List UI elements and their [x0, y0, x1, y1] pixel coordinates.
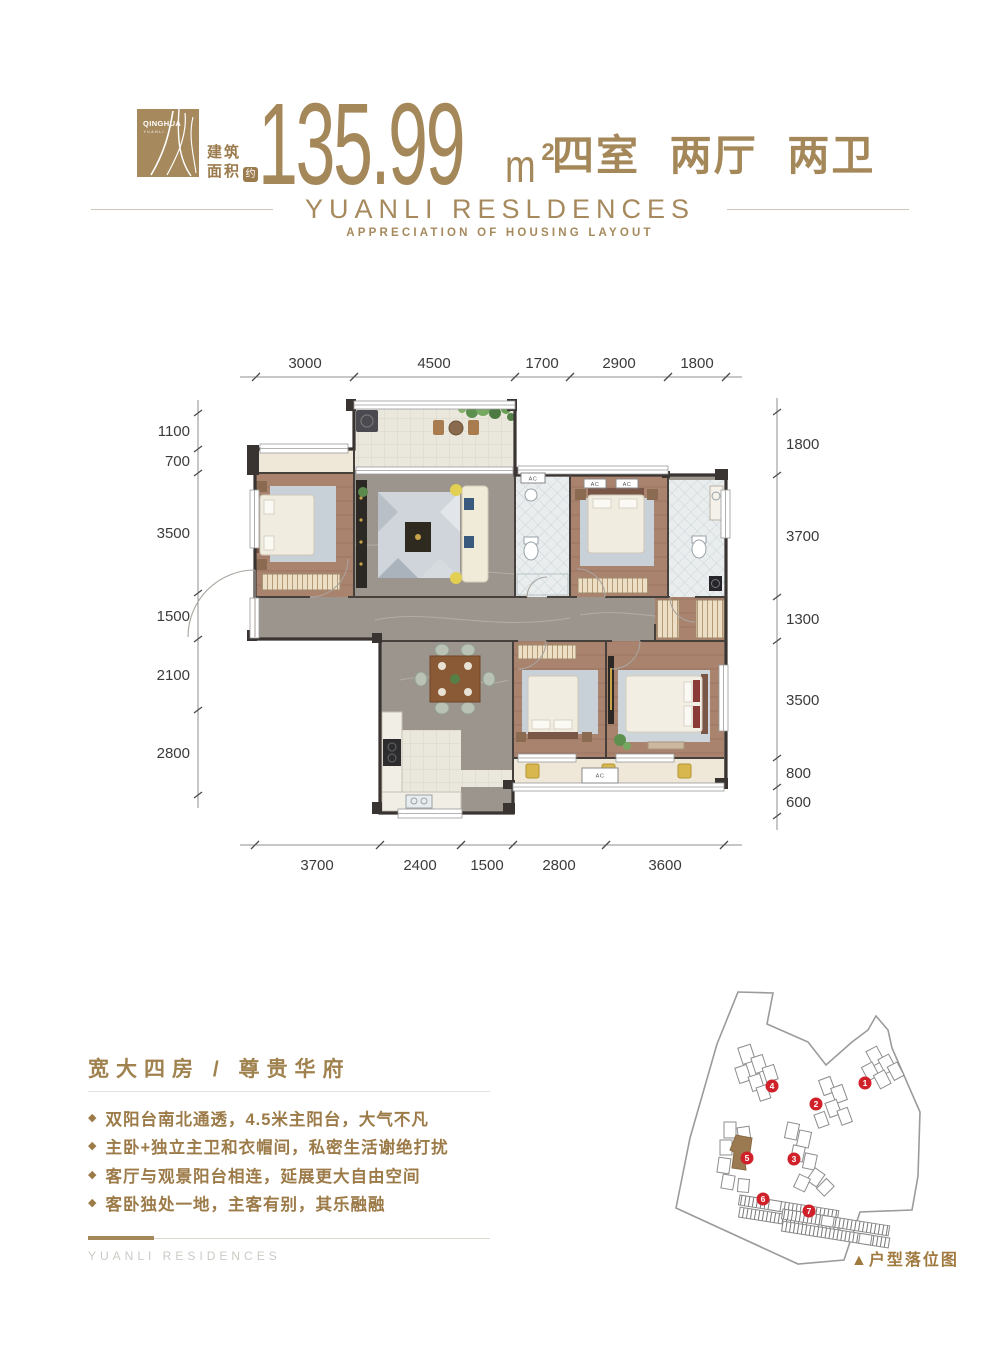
dim-label: 2900 — [602, 355, 635, 372]
feature-item: ◆ 客卧独处一地，主客有别，其乐融融 — [88, 1191, 385, 1215]
dim-label: 1500 — [470, 857, 503, 874]
page-title: YUANLI RESLDENCES — [305, 194, 695, 225]
dim-label: 1700 — [525, 355, 558, 372]
footer-divider-line — [154, 1238, 490, 1239]
diamond-icon: ◆ — [88, 1113, 96, 1124]
ac-label: AC — [623, 482, 632, 488]
dim-label: 2400 — [403, 857, 436, 874]
badge-number: 6 — [761, 1194, 766, 1204]
title-divider-right — [727, 209, 909, 210]
footer-divider-accent — [88, 1236, 154, 1240]
dim-labels-top: 3000 4500 1700 2900 1800 — [288, 355, 713, 372]
logo-line2: YUANLI — [144, 130, 165, 134]
logo-line1: QINGHUA — [143, 119, 181, 128]
dim-label: 2800 — [157, 745, 190, 762]
area-approx-badge: 约 — [243, 167, 258, 182]
dim-label: 800 — [786, 765, 811, 782]
ac-label: AC — [529, 477, 538, 483]
area-unit: m 2 — [505, 143, 555, 189]
footer-divider — [88, 1236, 490, 1240]
site-plan-svg: 1 2 3 4 5 6 7 — [640, 980, 1000, 1280]
feature-item: ◆ 双阳台南北通透，4.5米主阳台，大气不凡 — [88, 1106, 429, 1130]
dim-label: 1800 — [786, 436, 819, 453]
diamond-icon: ◆ — [88, 1141, 96, 1152]
dim-label: 2800 — [542, 857, 575, 874]
dim-label: 1100 — [158, 423, 190, 440]
site-plan: 1 2 3 4 5 6 7 — [640, 980, 1000, 1280]
feature-text: 双阳台南北通透，4.5米主阳台，大气不凡 — [105, 1106, 428, 1130]
dim-labels-bottom: 3700 2400 1500 2800 3600 — [300, 857, 681, 874]
features-divider — [88, 1091, 490, 1092]
features-heading: 宽大四房 / 尊贵华府 — [88, 1053, 351, 1083]
feature-item: ◆ 主卧+独立主卫和衣帽间，私密生活谢绝打扰 — [88, 1134, 449, 1158]
footer-brand: YUANLI RESIDENCES — [88, 1249, 281, 1263]
ac-label: AC — [591, 482, 600, 488]
area-unit-base: m — [505, 143, 536, 189]
badge-number: 5 — [745, 1153, 750, 1163]
title-row: YUANLI RESLDENCES — [0, 194, 1000, 225]
room-configuration: 四室 两厅 两卫 — [552, 122, 875, 183]
badge-number: 1 — [863, 1078, 868, 1088]
dim-label: 3500 — [786, 692, 819, 709]
dim-label: 3000 — [288, 355, 321, 372]
feature-item: ◆ 客厅与观景阳台相连，延展更大自由空间 — [88, 1163, 420, 1187]
dim-labels-left: 1100 700 3500 1500 2100 2800 — [157, 423, 190, 762]
badge-number: 3 — [792, 1154, 797, 1164]
dim-label: 3500 — [157, 525, 190, 542]
brand-logo: QINGHUA YUANLI — [137, 109, 199, 177]
area-value: 135.99 — [258, 86, 463, 202]
title-divider-left — [91, 209, 273, 210]
badge-number: 2 — [814, 1099, 819, 1109]
dim-label: 3700 — [300, 857, 333, 874]
dim-label: 4500 — [417, 355, 450, 372]
dim-label: 1300 — [786, 611, 819, 628]
site-plan-caption: ▲户型落位图 — [851, 1246, 959, 1270]
dim-label: 3700 — [786, 528, 819, 545]
diamond-icon: ◆ — [88, 1198, 96, 1209]
area-label: 建筑 面积 — [207, 143, 241, 181]
flyer-page: QINGHUA YUANLI 建筑 面积 约 135.99 m 2 四室 两厅 … — [0, 0, 1000, 1353]
dim-label: 1800 — [680, 355, 713, 372]
page-subtitle: APPRECIATION OF HOUSING LAYOUT — [0, 227, 1000, 239]
logo-tree-icon: QINGHUA YUANLI — [137, 109, 199, 177]
dim-label: 700 — [165, 453, 190, 470]
master-bedroom-furniture — [608, 656, 710, 750]
dim-label: 600 — [786, 794, 811, 811]
area-label-line2: 面积 — [207, 162, 241, 181]
dim-label: 3600 — [648, 857, 681, 874]
dim-label: 1500 — [157, 608, 190, 625]
badge-number: 4 — [770, 1081, 775, 1091]
floor-plan-svg: AC AC AC AC 3000 4500 1700 2900 1800 370… — [150, 340, 850, 900]
ac-label: AC — [596, 774, 605, 780]
feature-text: 客厅与观景阳台相连，延展更大自由空间 — [105, 1163, 420, 1187]
dim-label: 2100 — [157, 667, 190, 684]
room-bath-1 — [515, 475, 570, 597]
badge-number: 7 — [807, 1206, 812, 1216]
dim-labels-right: 1800 3700 1300 3500 800 600 — [786, 436, 819, 811]
area-label-line1: 建筑 — [207, 143, 241, 162]
feature-text: 主卧+独立主卫和衣帽间，私密生活谢绝打扰 — [105, 1134, 448, 1158]
diamond-icon: ◆ — [88, 1170, 96, 1181]
feature-text: 客卧独处一地，主客有别，其乐融融 — [105, 1191, 385, 1215]
floor-plan-figure: AC AC AC AC 3000 4500 1700 2900 1800 370… — [150, 340, 850, 900]
